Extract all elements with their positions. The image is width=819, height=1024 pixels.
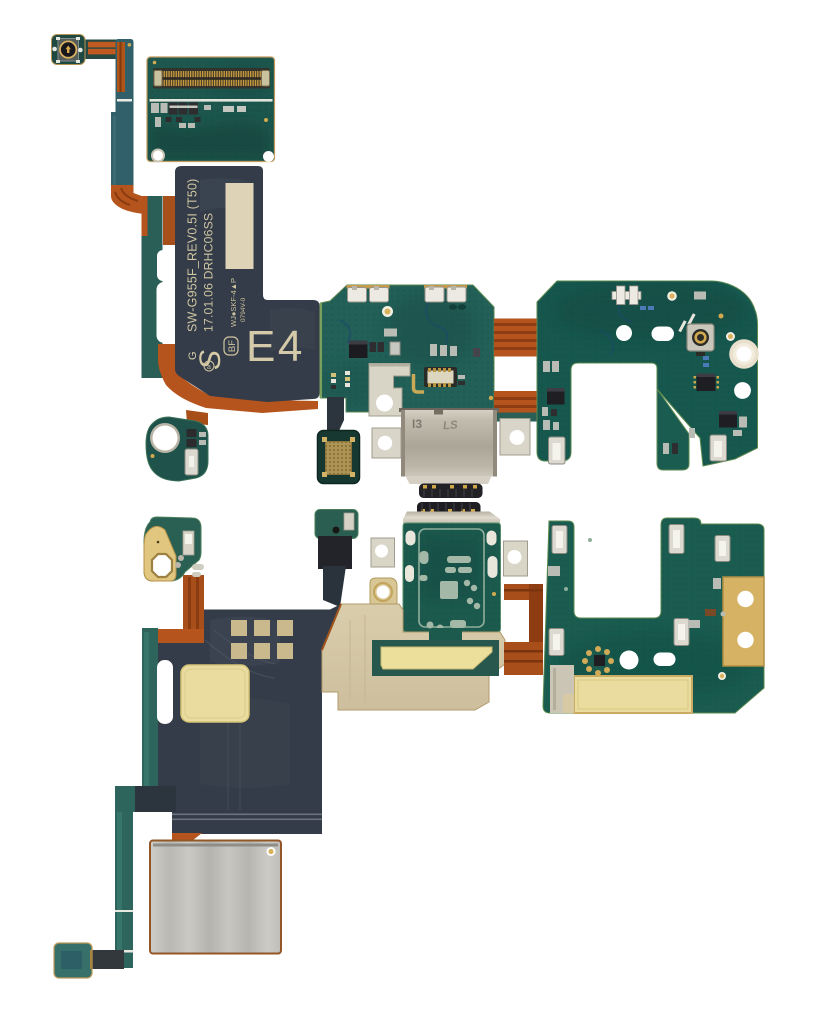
svg-text:E4: E4 bbox=[246, 322, 305, 371]
svg-text:I3: I3 bbox=[412, 417, 422, 431]
svg-text:a: a bbox=[207, 364, 211, 371]
svg-text:BF: BF bbox=[227, 340, 238, 352]
svg-text:LS: LS bbox=[443, 419, 459, 432]
svg-text:SW-G955F_REV0.5I (T50): SW-G955F_REV0.5I (T50) bbox=[186, 178, 200, 332]
svg-text:WJ●SKF-4▲P: WJ●SKF-4▲P bbox=[229, 278, 238, 327]
svg-text:17.01.06 DRHC06SS: 17.01.06 DRHC06SS bbox=[202, 213, 216, 332]
svg-text:G: G bbox=[187, 351, 199, 360]
svg-text:0794V-0: 0794V-0 bbox=[240, 297, 247, 322]
